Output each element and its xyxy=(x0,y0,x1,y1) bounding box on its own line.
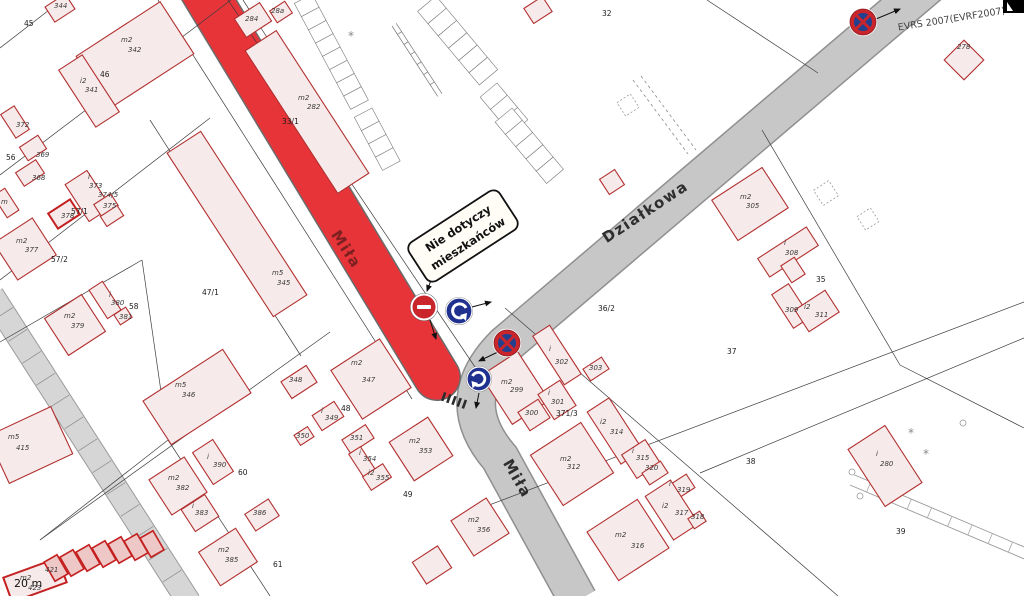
building-label: m2 xyxy=(218,546,230,554)
garage-stall-row xyxy=(495,108,563,183)
building-label: m2 xyxy=(501,378,513,386)
parcel-number-label: 36/2 xyxy=(598,304,615,313)
building-label: i xyxy=(321,407,323,415)
parcel-number-label: 58 xyxy=(129,302,139,311)
no-stopping-sign xyxy=(850,9,877,36)
parcel-number-label: 46 xyxy=(100,70,110,79)
parcel-number-label: 56 xyxy=(6,153,16,162)
building-label: i2 xyxy=(662,502,669,510)
building-label: 379 xyxy=(71,322,85,330)
utility-symbol xyxy=(857,493,863,499)
scale-label: 20 m xyxy=(14,577,42,590)
map-viewport[interactable]: *** 45463233/147/15657/157/2586061484935… xyxy=(0,0,1024,596)
building xyxy=(16,160,45,186)
building-label: 317 xyxy=(675,509,689,517)
building-label: 348 xyxy=(289,376,303,384)
building-label: m2 xyxy=(468,516,480,524)
parcel-number-label: 45 xyxy=(24,19,34,28)
building-label: m5 xyxy=(175,381,187,389)
building-label: 349 xyxy=(325,414,339,422)
no-entry-sign xyxy=(411,294,438,321)
building-label: 28a xyxy=(271,7,284,15)
building-label: m2 xyxy=(351,359,363,367)
building-label: i2 xyxy=(80,77,87,85)
building-label: m2 xyxy=(64,312,76,320)
building-label: 350 xyxy=(296,432,310,440)
building-label: m2 xyxy=(121,36,133,44)
building-label: 300 xyxy=(525,409,539,417)
building-label: 369 xyxy=(36,151,50,159)
building-label: 312 xyxy=(567,463,581,471)
building-label: i2 xyxy=(600,418,607,426)
building-label: 314 xyxy=(610,428,623,436)
parcel-number-label: 38 xyxy=(746,457,756,466)
building-label: 301 xyxy=(551,398,564,406)
building-label: m2 xyxy=(560,455,572,463)
building-label: m2 xyxy=(409,437,421,445)
garage-stall-row xyxy=(418,0,498,85)
road-dzialkowa-mila xyxy=(476,0,940,596)
building-label: 341 xyxy=(85,86,98,94)
building-label: i xyxy=(359,449,361,457)
parcel-number-label: 32 xyxy=(602,9,612,18)
building-label: 345 xyxy=(277,279,291,287)
building-label: i xyxy=(548,389,550,397)
building-label: 375 xyxy=(103,202,117,210)
dashed-path xyxy=(633,76,696,154)
building-label: i xyxy=(876,450,878,458)
building-label: 342 xyxy=(128,46,142,54)
annotation-callout: Nie dotyczy mieszkańców xyxy=(405,187,521,284)
building xyxy=(524,0,552,24)
parcel-number-label: 35 xyxy=(816,275,826,284)
building-label: 351 xyxy=(350,434,363,442)
building-label: 382 xyxy=(176,484,190,492)
building-label: m2 xyxy=(298,94,310,102)
building-label: 386 xyxy=(253,509,267,517)
building-label: i xyxy=(207,453,209,461)
corner-badge xyxy=(1003,0,1024,13)
building-label: m2 xyxy=(168,474,180,482)
tree-symbol: * xyxy=(923,447,929,461)
building-label: 302 xyxy=(555,358,569,366)
building xyxy=(533,325,581,385)
dashed-structure xyxy=(814,181,839,206)
building-label: 305 xyxy=(746,202,760,210)
building-label: 308 xyxy=(785,249,799,257)
building-label: m2 xyxy=(16,237,28,245)
building-label: i xyxy=(632,447,634,455)
building-label: 390 xyxy=(213,461,227,469)
utility-symbol xyxy=(960,420,966,426)
parcel-number-label: 49 xyxy=(403,490,413,499)
utility-symbol xyxy=(849,469,855,475)
building-label: i xyxy=(88,173,90,181)
parcel-number-label: 371/3 xyxy=(556,409,578,418)
building xyxy=(412,546,451,584)
building-label: 311 xyxy=(815,311,828,319)
building-label: i xyxy=(192,502,194,510)
building-label: 319 xyxy=(677,486,691,494)
building-label: 347 xyxy=(362,376,376,384)
building-label: 280 xyxy=(880,460,894,468)
building-label: 309 xyxy=(785,306,799,314)
building-label: 378 xyxy=(61,212,75,220)
building-label: 385 xyxy=(225,556,239,564)
parcel-number-label: 47/1 xyxy=(202,288,219,297)
parcel-number-label: 60 xyxy=(238,468,248,477)
building-label: 354 xyxy=(363,455,376,463)
dashed-structure xyxy=(617,94,639,116)
building-label: m2 xyxy=(615,531,627,539)
building-label: 320 xyxy=(645,464,659,472)
parcel-number-label: 39 xyxy=(896,527,906,536)
parcel-number-label: 33/1 xyxy=(282,117,299,126)
building-label: 353 xyxy=(419,447,432,455)
building-label: i2 xyxy=(804,303,811,311)
building-label: 374/5 xyxy=(98,191,119,199)
building-label: 421 xyxy=(45,566,58,574)
parcel-number-label: 61 xyxy=(273,560,283,569)
building-label: 282 xyxy=(307,103,321,111)
building-label: m5 xyxy=(8,433,20,441)
building-label: i xyxy=(669,480,671,488)
no-stopping-sign xyxy=(494,330,521,357)
building-label: 381 xyxy=(119,313,132,321)
building-label: i xyxy=(109,291,111,299)
building-label: i2 xyxy=(368,469,375,477)
tree-symbol: * xyxy=(348,29,354,43)
building-label: m5 xyxy=(272,269,284,277)
building-label: 346 xyxy=(182,391,196,399)
building-label: 284 xyxy=(245,15,258,23)
building-label: i xyxy=(784,239,786,247)
mandatory-direction-right-sign xyxy=(467,367,492,392)
fence-line xyxy=(392,23,442,96)
building-label: i xyxy=(549,345,551,353)
parcel-number-label: 37 xyxy=(727,347,737,356)
building-label: 315 xyxy=(636,454,650,462)
building-label: 303 xyxy=(589,364,602,372)
building-label: 299 xyxy=(510,386,524,394)
building-label: 356 xyxy=(477,526,491,534)
building-label: 383 xyxy=(195,509,208,517)
building-label: 415 xyxy=(16,444,30,452)
building-label: 278 xyxy=(957,43,971,51)
building-label: 355 xyxy=(376,474,390,482)
building-label: m xyxy=(1,198,8,206)
building-label: 316 xyxy=(631,542,645,550)
building-label: 368 xyxy=(32,174,46,182)
parcel-number-label: 48 xyxy=(341,404,351,413)
mandatory-direction-left-sign xyxy=(446,298,473,325)
parcel-number-label: 57/2 xyxy=(51,255,68,264)
building-label: 380 xyxy=(111,299,125,307)
building xyxy=(143,349,251,444)
dashed-structure xyxy=(857,208,879,230)
building-label: 344 xyxy=(54,2,67,10)
tree-symbol: * xyxy=(908,426,914,440)
cadastral-map-canvas[interactable]: *** 45463233/147/15657/157/2586061484935… xyxy=(0,0,1024,596)
building-label: 373 xyxy=(89,182,102,190)
building-label: 377 xyxy=(25,246,39,254)
building-label: 372 xyxy=(16,121,30,129)
building-label: 318 xyxy=(691,513,705,521)
building xyxy=(600,170,625,195)
building-label: m2 xyxy=(740,193,752,201)
